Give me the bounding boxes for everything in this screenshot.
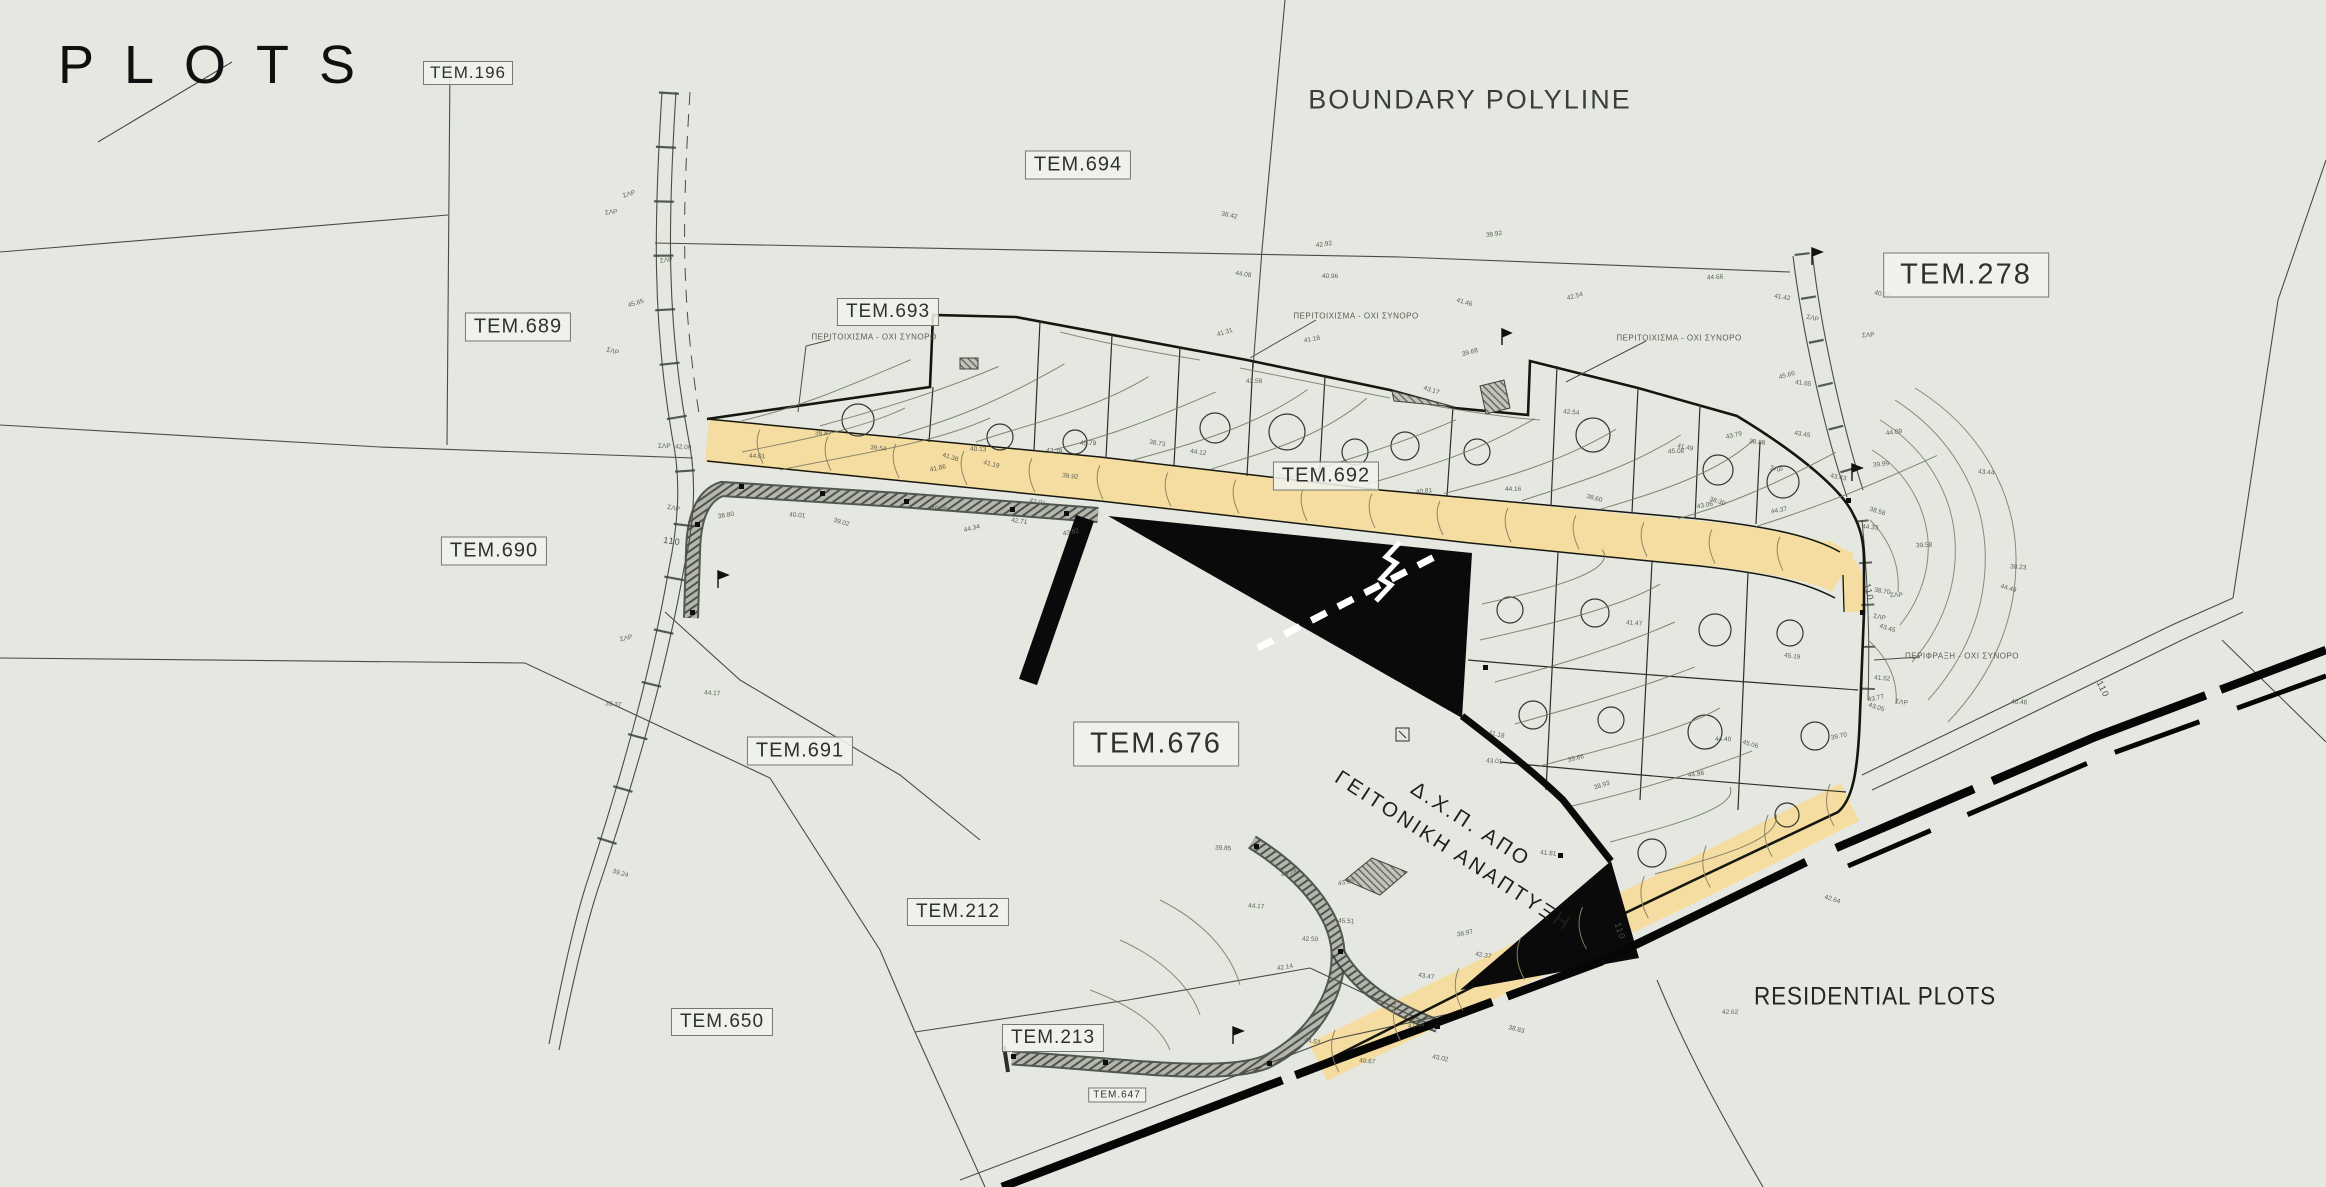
residential-plots-note: RESIDENTIAL PLOTS — [1754, 983, 1996, 1012]
plot-label-tem-691: TEM.691 — [747, 737, 853, 766]
boundary-polyline-note: BOUNDARY POLYLINE — [1308, 85, 1632, 116]
fence-note: ΠΕΡΙΦΡΑΞΗ - ΟΧΙ ΣΥΝΟΡΟ — [1905, 652, 2019, 661]
plot-label-tem-690: TEM.690 — [441, 537, 547, 566]
plot-label-tem-693: TEM.693 — [837, 298, 939, 326]
plot-label-tem-647: TEM.647 — [1088, 1088, 1146, 1103]
plot-label-tem-278: TEM.278 — [1883, 253, 2049, 298]
wall-note-2: ΠΕΡΙΤΟΙΧΙΣΜΑ - ΟΧΙ ΣΥΝΟΡΟ — [1293, 312, 1418, 321]
plot-label-tem-689: TEM.689 — [465, 313, 571, 342]
wall-note-1: ΠΕΡΙΤΟΙΧΙΣΜΑ - ΟΧΙ ΣΥΝΟΡΟ — [811, 333, 936, 342]
wall-note-3: ΠΕΡΙΤΟΙΧΙΣΜΑ - ΟΧΙ ΣΥΝΟΡΟ — [1616, 334, 1741, 343]
plot-label-tem-694: TEM.694 — [1025, 151, 1131, 180]
page-title: PLOTS — [58, 34, 385, 96]
plot-label-tem-212: TEM.212 — [907, 898, 1009, 926]
plot-label-tem-650: TEM.650 — [671, 1008, 773, 1036]
plot-label-tem-692: TEM.692 — [1273, 462, 1379, 491]
site-plan-page: 45.2040.1344.1638.8838.3044.1241.1940.81… — [0, 0, 2326, 1187]
plot-label-tem-196: TEM.196 — [423, 61, 513, 85]
plot-label-tem-213: TEM.213 — [1002, 1024, 1104, 1052]
plot-label-tem-676: TEM.676 — [1073, 722, 1239, 767]
